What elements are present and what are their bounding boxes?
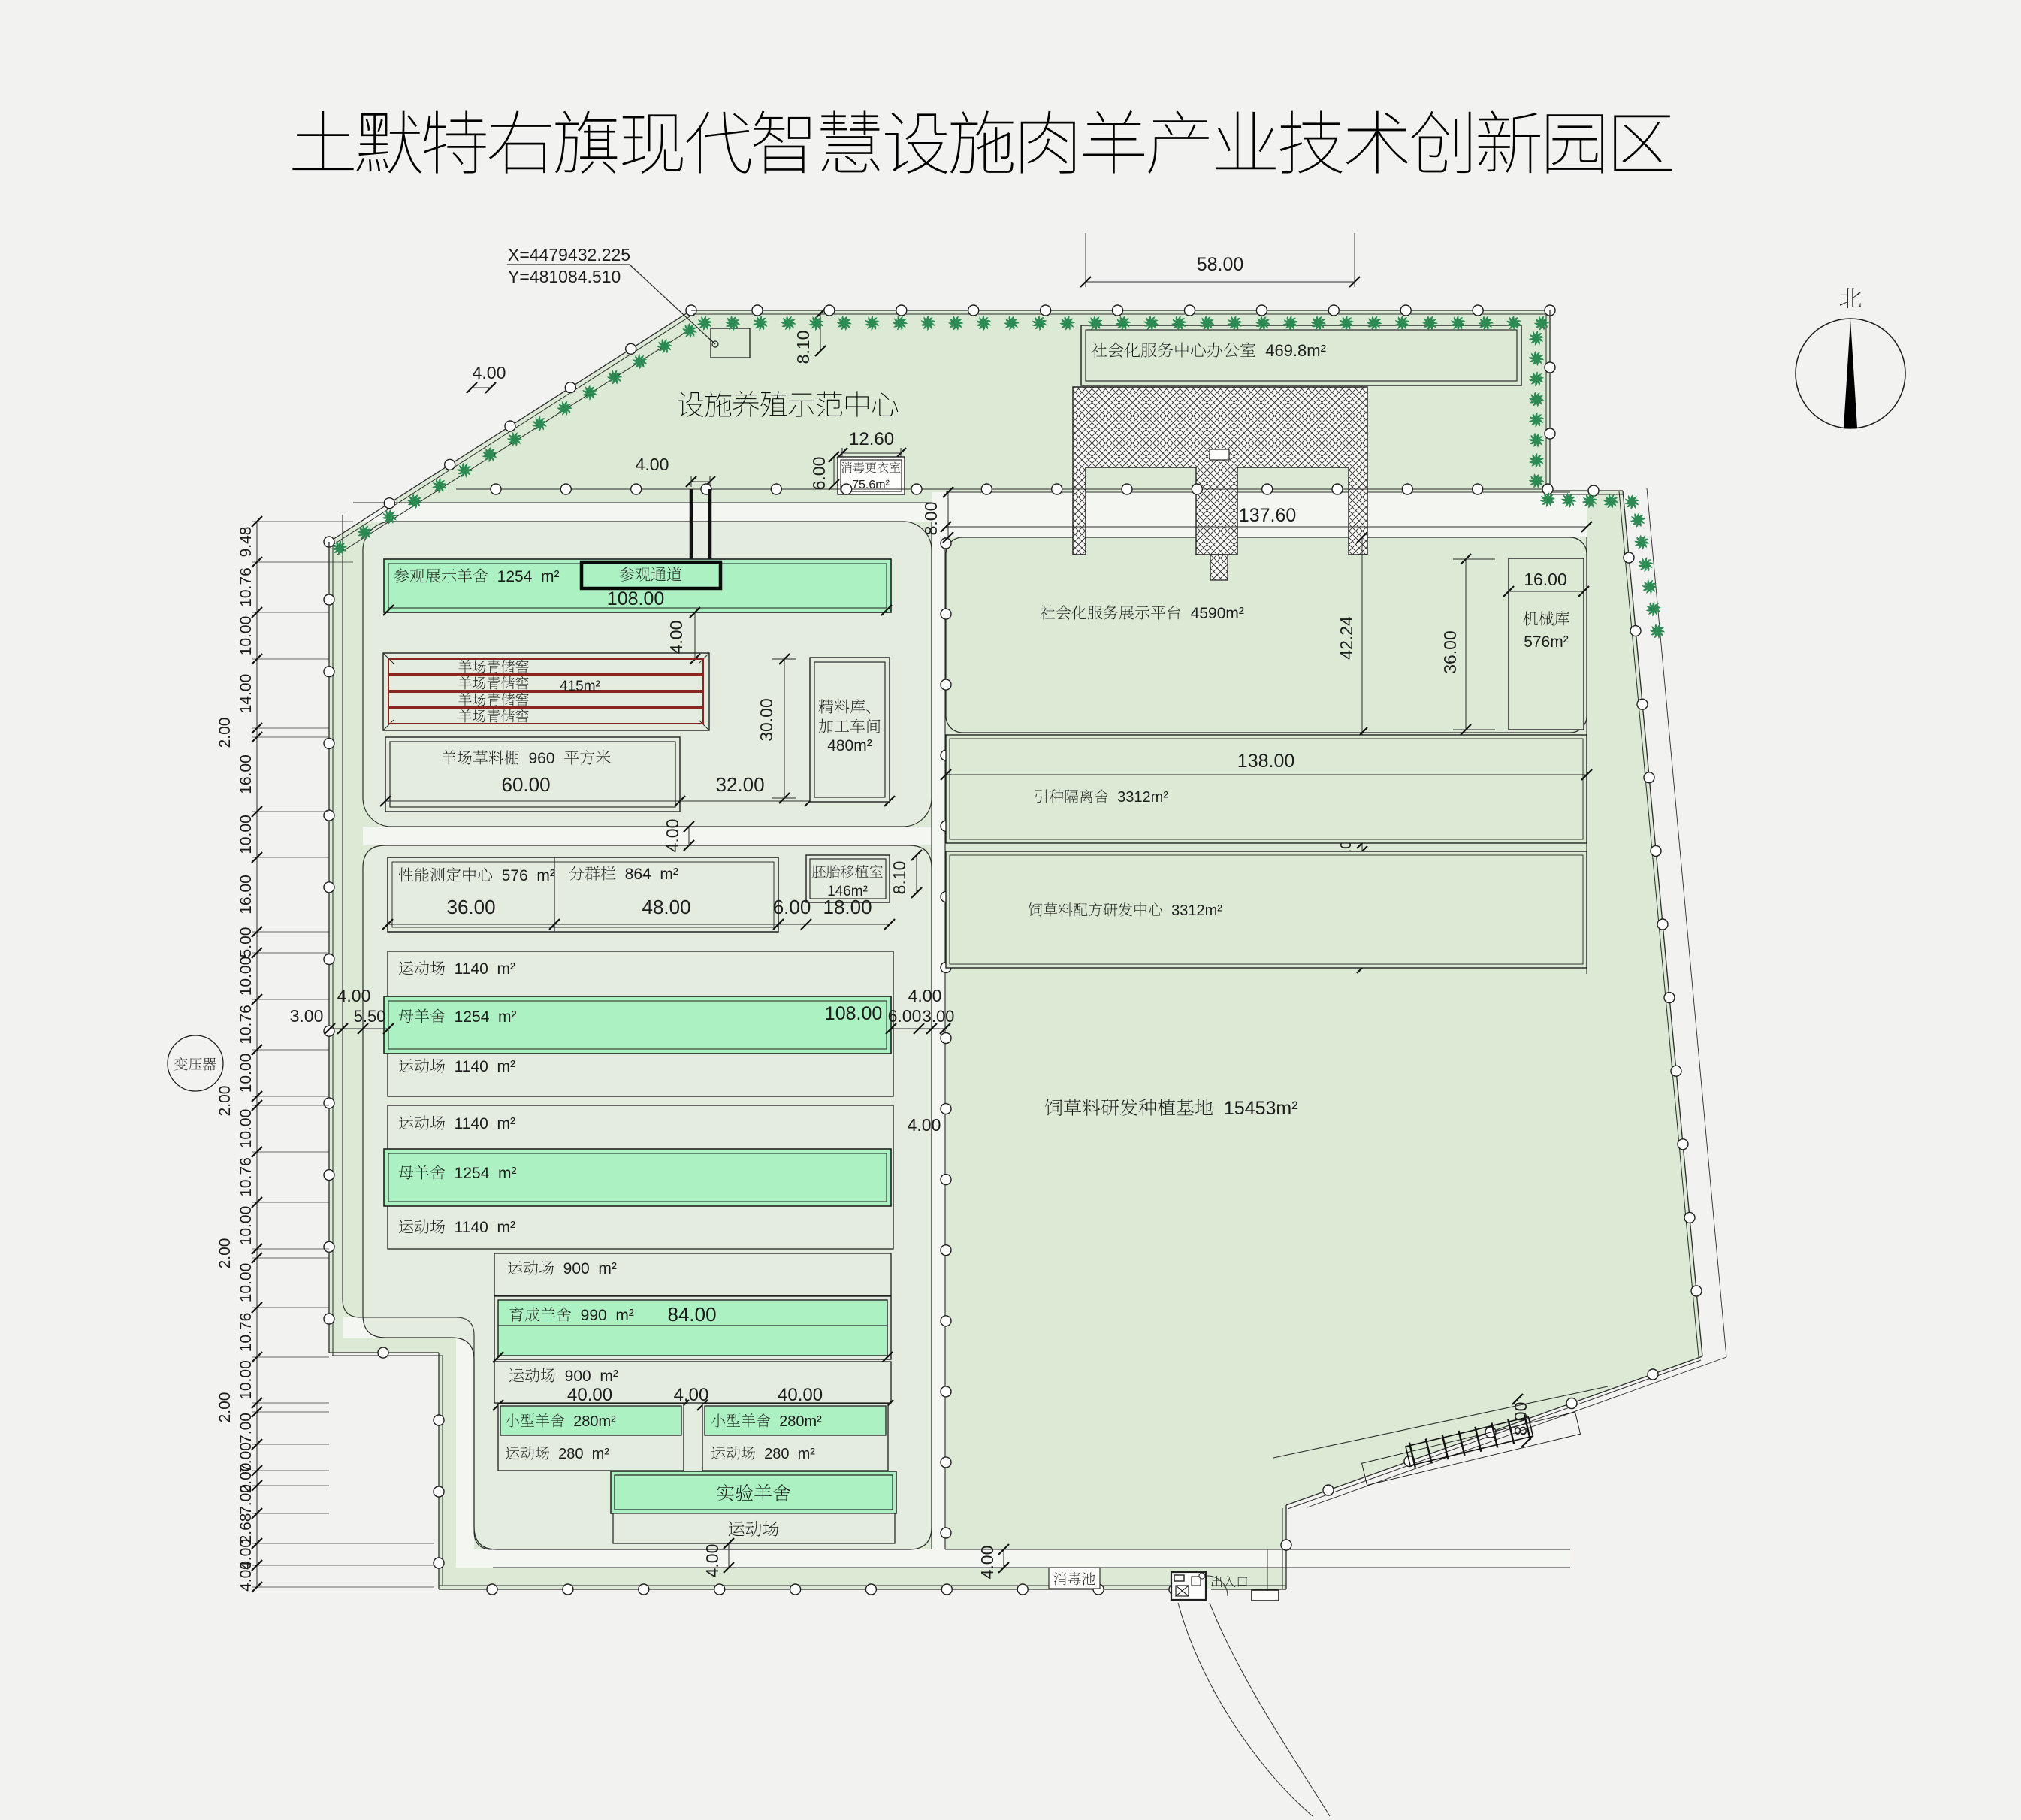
svg-text:16.00: 16.00	[1524, 570, 1567, 589]
svg-text:4.00: 4.00	[702, 1544, 722, 1578]
svg-text:415m²: 415m²	[560, 679, 600, 694]
svg-text:10.76: 10.76	[237, 1157, 255, 1197]
svg-text:280m²: 280m²	[565, 1413, 616, 1430]
svg-text:4.00: 4.00	[636, 455, 669, 474]
svg-text:469.8m²: 469.8m²	[1256, 341, 1326, 360]
svg-text:6.00: 6.00	[888, 1006, 922, 1026]
svg-text:1254 m²: 1254 m²	[446, 1008, 517, 1026]
svg-text:36.00: 36.00	[447, 896, 496, 918]
svg-text:4.00: 4.00	[237, 1561, 255, 1592]
svg-text:Y=481084.510: Y=481084.510	[508, 267, 621, 286]
svg-text:10.00: 10.00	[237, 815, 255, 854]
svg-text:10.00: 10.00	[237, 1206, 255, 1246]
svg-text:3312m²: 3312m²	[1109, 789, 1168, 806]
svg-text:3312m²: 3312m²	[1163, 902, 1222, 919]
svg-text:9.48: 9.48	[237, 527, 255, 558]
svg-text:10.00: 10.00	[237, 616, 255, 656]
svg-text:1140 m²: 1140 m²	[446, 1058, 515, 1075]
svg-text:4.00: 4.00	[674, 1385, 709, 1405]
svg-text:10.76: 10.76	[237, 567, 255, 607]
svg-text:48.00: 48.00	[642, 896, 691, 918]
svg-text:10.00: 10.00	[237, 1360, 255, 1400]
svg-text:990 m²: 990 m²	[572, 1307, 634, 1324]
svg-text:18.00: 18.00	[823, 896, 872, 918]
svg-text:864 m²: 864 m²	[616, 866, 678, 883]
svg-text:58.00: 58.00	[1197, 254, 1244, 275]
svg-text:280m²: 280m²	[771, 1413, 822, 1430]
svg-text:42.24: 42.24	[1337, 616, 1356, 660]
svg-text:2.00: 2.00	[216, 1086, 234, 1117]
svg-text:138.00: 138.00	[1237, 751, 1294, 772]
svg-text:40.00: 40.00	[567, 1385, 612, 1405]
svg-text:4.00: 4.00	[977, 1546, 997, 1580]
svg-text:108.00: 108.00	[607, 588, 664, 609]
svg-text:960: 960	[520, 750, 563, 767]
svg-text:7.00: 7.00	[237, 1484, 255, 1515]
svg-text:8.10: 8.10	[890, 861, 909, 895]
svg-text:4.00: 4.00	[908, 986, 942, 1005]
svg-text:60.00: 60.00	[502, 773, 551, 796]
svg-text:4590m²: 4590m²	[1182, 605, 1244, 622]
svg-text:900 m²: 900 m²	[554, 1260, 617, 1277]
svg-text:8.00: 8.00	[1511, 1402, 1530, 1436]
svg-text:576m²: 576m²	[1524, 633, 1569, 651]
svg-text:16.00: 16.00	[237, 754, 255, 794]
svg-text:30.00: 30.00	[757, 698, 776, 742]
svg-text:4.00: 4.00	[663, 819, 682, 853]
svg-text:6.00: 6.00	[773, 896, 811, 918]
svg-text:14.00: 14.00	[237, 674, 255, 714]
svg-text:900 m²: 900 m²	[556, 1368, 618, 1385]
svg-text:2.00: 2.00	[216, 1238, 234, 1269]
svg-text:1254 m²: 1254 m²	[446, 1165, 517, 1182]
svg-text:40.00: 40.00	[778, 1385, 823, 1405]
svg-text:36.00: 36.00	[1440, 630, 1460, 674]
svg-text:7.00: 7.00	[237, 1413, 255, 1444]
svg-text:3.00: 3.00	[923, 1007, 955, 1026]
svg-text:1254 m²: 1254 m²	[488, 568, 560, 585]
svg-text:16.00: 16.00	[237, 875, 255, 915]
svg-text:2.00: 2.00	[216, 718, 234, 748]
svg-text:4.00: 4.00	[908, 1115, 941, 1135]
svg-text:280 m²: 280 m²	[550, 1446, 609, 1462]
svg-text:84.00: 84.00	[668, 1303, 717, 1326]
svg-text:10.76: 10.76	[237, 1313, 255, 1353]
svg-text:1140 m²: 1140 m²	[446, 1219, 515, 1236]
svg-text:10.76: 10.76	[237, 1005, 255, 1045]
svg-text:1140 m²: 1140 m²	[446, 960, 515, 978]
svg-text:3.00: 3.00	[290, 1006, 324, 1026]
svg-text:1140 m²: 1140 m²	[446, 1115, 515, 1132]
svg-text:12.60: 12.60	[849, 429, 894, 449]
svg-text:480m²: 480m²	[827, 737, 872, 754]
svg-text:X=4479432.225: X=4479432.225	[508, 245, 630, 265]
svg-text:10.00: 10.00	[237, 1263, 255, 1303]
svg-text:5.00: 5.00	[237, 927, 255, 958]
svg-text:576 m²: 576 m²	[493, 867, 555, 884]
svg-text:32.00: 32.00	[716, 773, 765, 796]
svg-text:5.50: 5.50	[354, 1007, 386, 1026]
svg-text:10.00: 10.00	[237, 957, 255, 996]
svg-text:15453m²: 15453m²	[1213, 1098, 1298, 1119]
svg-text:4.00: 4.00	[337, 986, 371, 1005]
svg-text:137.60: 137.60	[1239, 505, 1296, 526]
svg-text:2.00: 2.00	[216, 1392, 234, 1423]
svg-text:4.00: 4.00	[666, 621, 686, 655]
svg-text:4.00: 4.00	[473, 363, 506, 382]
svg-text:6.00: 6.00	[809, 457, 829, 491]
svg-text:10.00: 10.00	[237, 1054, 255, 1093]
svg-text:10.00: 10.00	[237, 1109, 255, 1149]
svg-text:8.00: 8.00	[921, 502, 941, 536]
svg-text:280 m²: 280 m²	[756, 1446, 815, 1462]
svg-text:8.10: 8.10	[793, 331, 813, 364]
svg-text:108.00: 108.00	[825, 1003, 882, 1024]
